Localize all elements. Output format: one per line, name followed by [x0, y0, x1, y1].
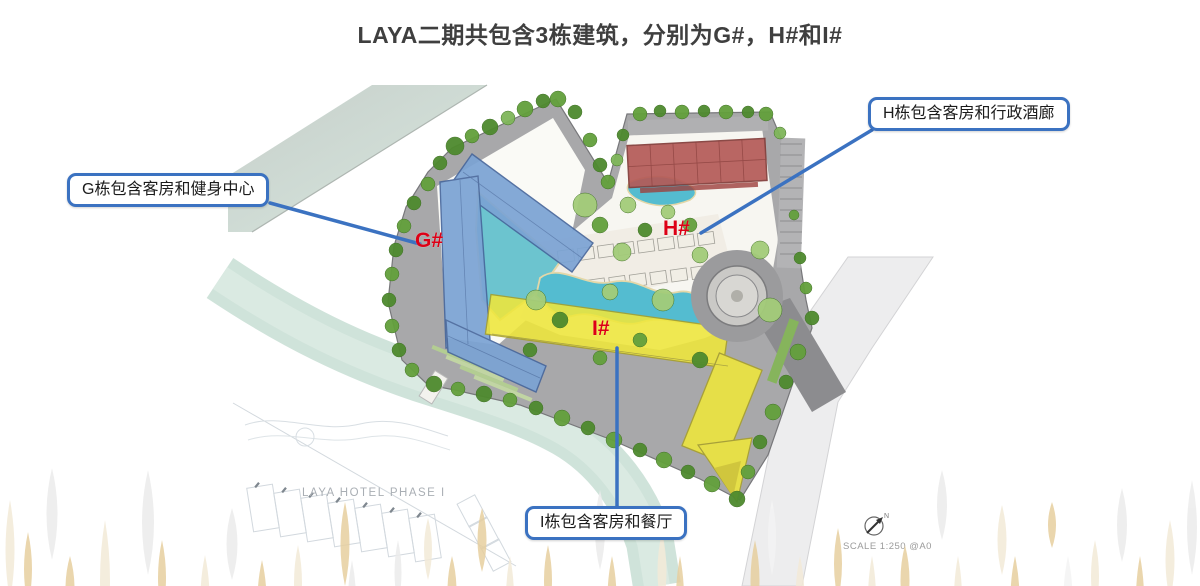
phase1-sketch: LAYA HOTEL PHASE I: [233, 403, 516, 571]
roundabout: [691, 250, 783, 342]
callout-building-g-label: G栋包含客房和健身中心: [82, 181, 254, 198]
slide: LAYA HOTEL PHASE I: [0, 0, 1200, 586]
callout-building-i-label: I栋包含客房和餐厅: [540, 514, 672, 531]
site-plan-map: LAYA HOTEL PHASE I: [0, 0, 1200, 586]
scale-label: SCALE 1:250 @A0: [843, 541, 932, 552]
phase1-label: LAYA HOTEL PHASE I: [302, 487, 446, 499]
building-g-label: G#: [415, 229, 443, 253]
north-label: N: [884, 513, 889, 520]
building-i-label: I#: [592, 317, 610, 341]
north-arrow-icon: N: [865, 513, 889, 535]
callout-building-g: G栋包含客房和健身中心: [67, 173, 269, 207]
page-title: LAYA二期共包含3栋建筑，分别为G#，H#和I#: [0, 16, 1200, 50]
building-h-label: H#: [663, 217, 690, 241]
callout-building-h: H栋包含客房和行政酒廊: [868, 97, 1070, 131]
callout-building-i: I栋包含客房和餐厅: [525, 506, 687, 540]
callout-building-h-label: H栋包含客房和行政酒廊: [883, 105, 1055, 122]
